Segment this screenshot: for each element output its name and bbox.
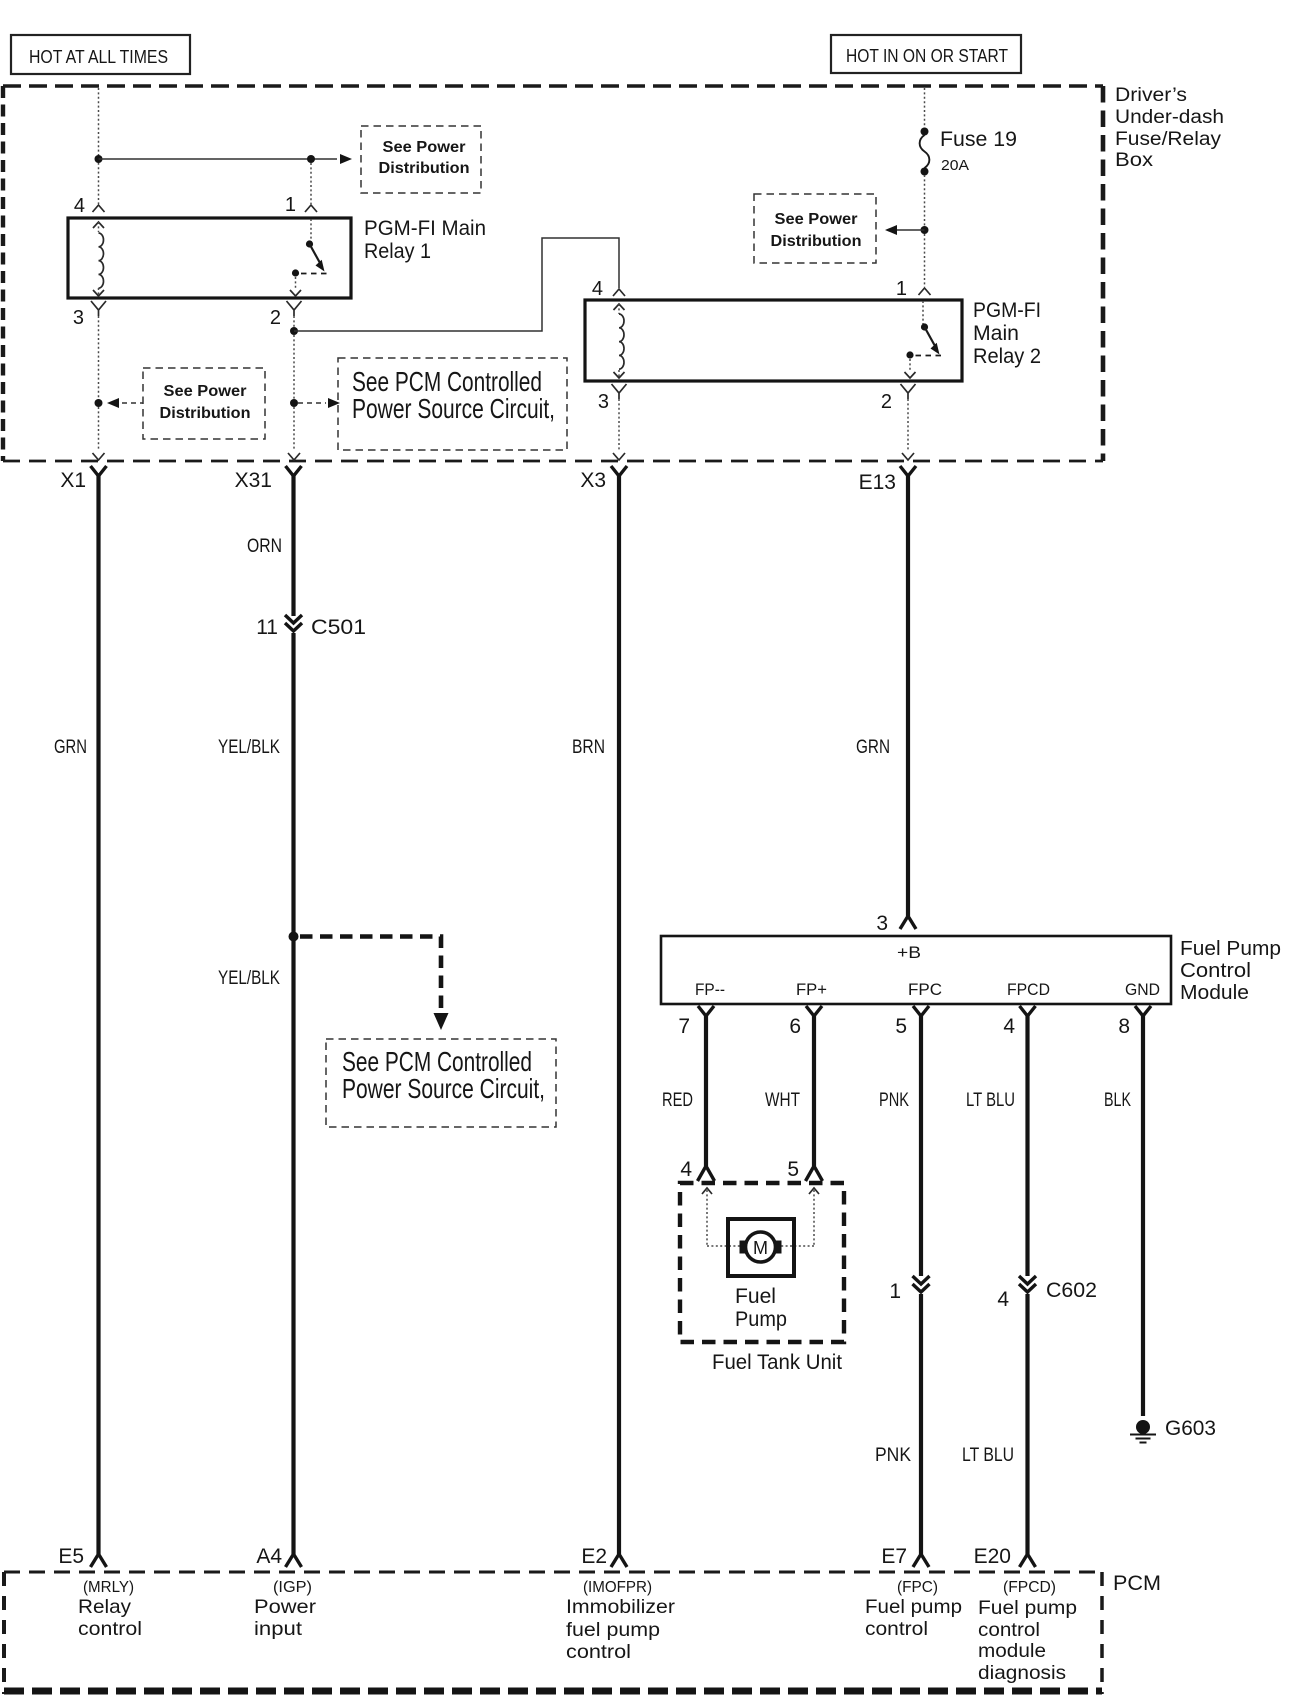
- svg-text:G603: G603: [1165, 1417, 1216, 1440]
- svg-text:X31: X31: [235, 469, 272, 492]
- svg-text:Fuel: Fuel: [735, 1285, 776, 1308]
- svg-text:control: control: [978, 1619, 1040, 1641]
- svg-text:3: 3: [598, 391, 609, 413]
- svg-text:See Power: See Power: [775, 211, 858, 228]
- svg-text:Power Source Circuit,: Power Source Circuit,: [342, 1073, 545, 1104]
- svg-text:Fuel pump: Fuel pump: [865, 1596, 962, 1618]
- svg-text:Power Source Circuit,: Power Source Circuit,: [352, 393, 555, 424]
- svg-text:E5: E5: [58, 1545, 84, 1568]
- svg-text:11: 11: [256, 616, 278, 639]
- svg-text:C501: C501: [311, 616, 366, 639]
- svg-text:+B: +B: [897, 943, 921, 962]
- svg-text:Distribution: Distribution: [160, 405, 251, 422]
- svg-text:FP--: FP--: [695, 981, 725, 999]
- svg-text:X1: X1: [60, 469, 86, 492]
- svg-text:BLK: BLK: [1104, 1090, 1131, 1111]
- svg-text:Module: Module: [1180, 981, 1249, 1004]
- svg-text:control: control: [865, 1618, 928, 1640]
- svg-text:C602: C602: [1046, 1279, 1097, 1302]
- svg-text:control: control: [566, 1641, 631, 1663]
- svg-text:BRN: BRN: [572, 737, 605, 758]
- svg-text:WHT: WHT: [765, 1090, 800, 1111]
- svg-text:2: 2: [881, 391, 892, 413]
- svg-text:Distribution: Distribution: [379, 160, 470, 177]
- svg-text:(FPC): (FPC): [897, 1579, 938, 1596]
- svg-text:YEL/BLK: YEL/BLK: [218, 968, 280, 989]
- svg-text:input: input: [254, 1618, 303, 1640]
- svg-text:RED: RED: [662, 1090, 693, 1111]
- svg-text:6: 6: [789, 1015, 801, 1038]
- svg-text:PGM-FI Main: PGM-FI Main: [364, 217, 486, 240]
- svg-text:4: 4: [680, 1158, 692, 1181]
- svg-text:5: 5: [787, 1158, 799, 1181]
- svg-text:X3: X3: [580, 469, 606, 492]
- svg-text:(MRLY): (MRLY): [83, 1579, 134, 1596]
- svg-text:Control: Control: [1180, 959, 1251, 982]
- svg-text:7: 7: [678, 1015, 690, 1038]
- svg-text:Distribution: Distribution: [771, 233, 862, 250]
- svg-text:5: 5: [895, 1015, 907, 1038]
- svg-text:Relay 1: Relay 1: [364, 240, 431, 263]
- svg-text:(IGP): (IGP): [273, 1579, 312, 1596]
- svg-text:LT BLU: LT BLU: [966, 1090, 1015, 1111]
- svg-text:Relay: Relay: [78, 1596, 131, 1618]
- svg-text:HOT IN ON OR START: HOT IN ON OR START: [846, 46, 1008, 66]
- svg-text:M: M: [753, 1238, 768, 1258]
- svg-text:Relay 2: Relay 2: [973, 345, 1041, 368]
- svg-text:GRN: GRN: [856, 737, 890, 758]
- svg-text:20A: 20A: [941, 157, 969, 174]
- svg-text:Driver’s: Driver’s: [1115, 85, 1187, 106]
- svg-text:Power: Power: [254, 1596, 317, 1618]
- svg-text:Fuel pump: Fuel pump: [978, 1597, 1077, 1619]
- svg-text:Fuel Tank Unit: Fuel Tank Unit: [712, 1351, 842, 1374]
- svg-text:Pump: Pump: [735, 1308, 787, 1331]
- svg-text:PNK: PNK: [879, 1090, 909, 1111]
- svg-text:Under-dash: Under-dash: [1115, 107, 1224, 128]
- svg-text:GND: GND: [1125, 981, 1160, 999]
- svg-text:E20: E20: [974, 1545, 1011, 1568]
- svg-text:1: 1: [889, 1280, 901, 1303]
- svg-text:module: module: [978, 1640, 1046, 1662]
- svg-text:Fuel Pump: Fuel Pump: [1180, 937, 1281, 960]
- svg-text:(IMOFPR): (IMOFPR): [583, 1579, 652, 1596]
- svg-text:(FPCD): (FPCD): [1003, 1579, 1056, 1596]
- svg-text:PGM-FI: PGM-FI: [973, 299, 1041, 322]
- svg-text:PCM: PCM: [1113, 1572, 1161, 1595]
- svg-text:YEL/BLK: YEL/BLK: [218, 737, 280, 758]
- svg-text:See Power: See Power: [164, 383, 247, 400]
- svg-text:E13: E13: [859, 471, 896, 494]
- svg-text:FPCD: FPCD: [1007, 981, 1050, 999]
- svg-text:ORN: ORN: [247, 536, 282, 557]
- svg-text:4: 4: [592, 278, 603, 300]
- svg-text:diagnosis: diagnosis: [978, 1662, 1066, 1684]
- svg-text:Fuse/Relay: Fuse/Relay: [1115, 129, 1222, 150]
- svg-text:FPC: FPC: [908, 981, 942, 999]
- svg-text:8: 8: [1118, 1015, 1130, 1038]
- svg-text:Fuse 19: Fuse 19: [940, 128, 1017, 151]
- svg-text:4: 4: [1003, 1015, 1015, 1038]
- svg-text:Immobilizer: Immobilizer: [566, 1596, 676, 1618]
- svg-text:control: control: [78, 1618, 142, 1640]
- svg-text:FP+: FP+: [796, 981, 827, 999]
- svg-text:E2: E2: [581, 1545, 607, 1568]
- svg-text:2: 2: [270, 307, 281, 329]
- svg-text:PNK: PNK: [875, 1445, 911, 1466]
- svg-text:Box: Box: [1115, 150, 1154, 171]
- svg-text:1: 1: [896, 278, 907, 300]
- svg-text:1: 1: [285, 194, 296, 216]
- svg-text:Main: Main: [973, 322, 1019, 345]
- svg-text:4: 4: [997, 1288, 1009, 1311]
- svg-text:E7: E7: [881, 1545, 907, 1568]
- svg-text:LT BLU: LT BLU: [962, 1445, 1014, 1466]
- svg-text:A4: A4: [256, 1545, 282, 1568]
- svg-text:GRN: GRN: [54, 737, 87, 758]
- svg-text:See Power: See Power: [383, 139, 466, 156]
- svg-text:4: 4: [74, 195, 85, 217]
- svg-text:3: 3: [73, 307, 84, 329]
- svg-text:3: 3: [876, 912, 888, 935]
- svg-text:HOT AT ALL TIMES: HOT AT ALL TIMES: [29, 47, 168, 67]
- svg-text:fuel pump: fuel pump: [566, 1619, 660, 1641]
